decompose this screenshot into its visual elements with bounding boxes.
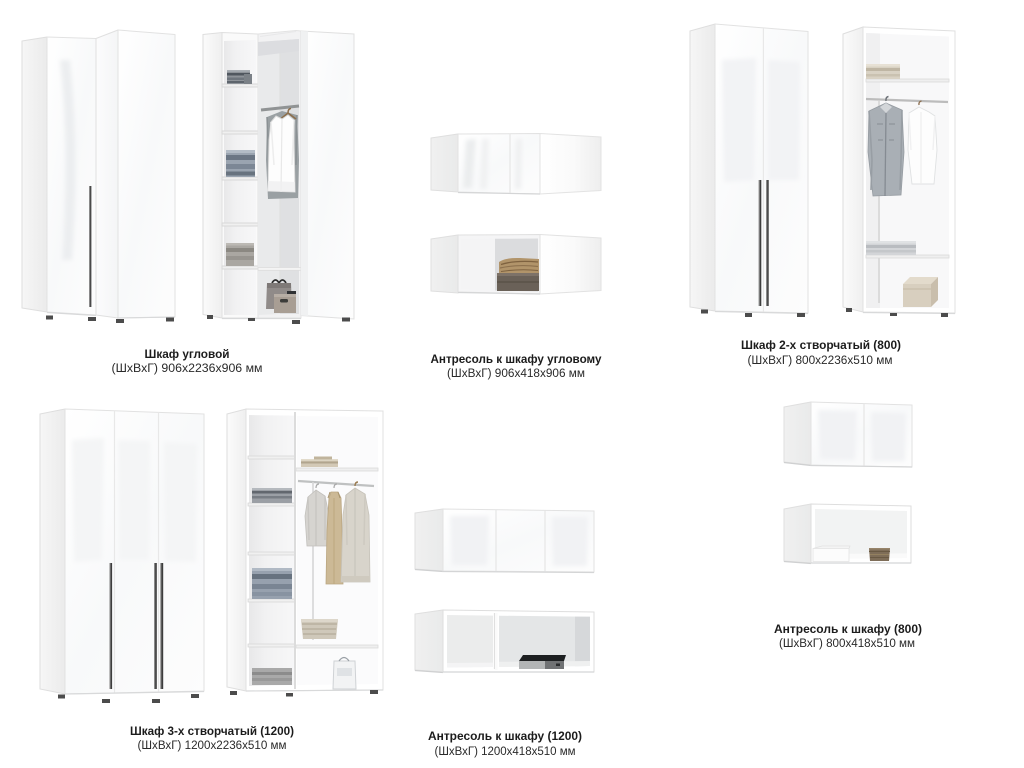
svg-text:(ШхВхГ) 906х2236х906 мм: (ШхВхГ) 906х2236х906 мм — [112, 361, 263, 375]
svg-text:Шкаф 2-х створчатый (800): Шкаф 2-х створчатый (800) — [741, 338, 901, 352]
svg-text:Шкаф угловой: Шкаф угловой — [145, 347, 230, 361]
svg-text:Антресоль к шкафу (800): Антресоль к шкафу (800) — [774, 622, 922, 636]
svg-text:(ШхВхГ) 1200х418х510 мм: (ШхВхГ) 1200х418х510 мм — [435, 744, 576, 758]
svg-text:Шкаф 3-х створчатый (1200): Шкаф 3-х створчатый (1200) — [130, 724, 294, 738]
svg-text:(ШхВхГ) 800х2236х510 мм: (ШхВхГ) 800х2236х510 мм — [748, 353, 893, 367]
svg-text:(ШхВхГ) 1200х2236х510 мм: (ШхВхГ) 1200х2236х510 мм — [138, 738, 287, 752]
svg-text:(ШхВхГ) 800х418х510 мм: (ШхВхГ) 800х418х510 мм — [779, 636, 915, 650]
svg-text:(ШхВхГ) 906х418х906 мм: (ШхВхГ) 906х418х906 мм — [447, 366, 585, 380]
svg-text:Антресоль к шкафу (1200): Антресоль к шкафу (1200) — [428, 729, 582, 743]
svg-text:Антресоль к шкафу угловому: Антресоль к шкафу угловому — [431, 352, 602, 366]
